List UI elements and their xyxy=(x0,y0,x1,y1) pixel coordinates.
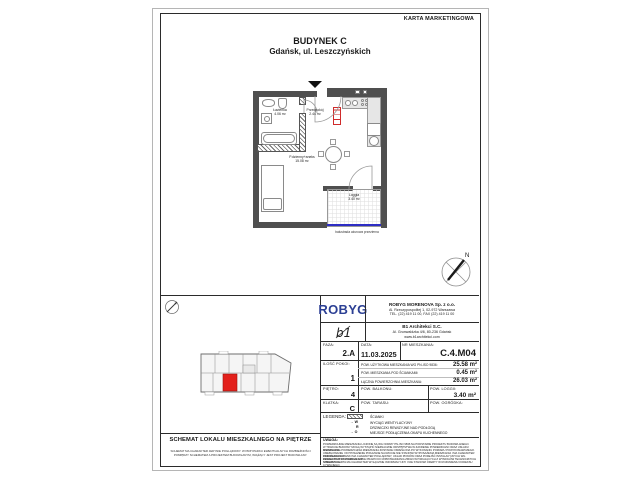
room-area: 2.44 m² xyxy=(301,112,329,116)
pow-tarasu-label: POW. TARASU: xyxy=(361,401,389,405)
partition-bathroom-right-lower xyxy=(299,113,306,152)
hood-symbol: → O xyxy=(350,430,357,434)
wall-left xyxy=(253,91,259,228)
partition-bathroom-right-upper xyxy=(299,97,306,105)
table-line xyxy=(400,341,401,360)
compass-icon: N xyxy=(436,246,480,294)
legenda-label: LEGENDA: xyxy=(323,414,346,419)
building-name: BUDYNEK C xyxy=(220,36,420,46)
room-label-living: P.dzienny+aneks 15.08 m² xyxy=(281,155,323,163)
table-line xyxy=(428,385,429,412)
floor-schematic xyxy=(199,351,295,399)
bathtub-inner-icon xyxy=(263,134,295,143)
area-row-value: 26.03 m² xyxy=(419,378,477,384)
architect-logo: b1 xyxy=(321,323,365,340)
faza-label: FAZA: xyxy=(323,343,334,347)
area-row-value: 0.45 m² xyxy=(419,370,477,376)
ilosc-pokoi-label: ILOŚĆ POKOI: xyxy=(323,362,350,366)
data-label: DATA: xyxy=(361,343,372,347)
stove-burner-icon xyxy=(361,103,364,106)
legend-item-text: WYCIĄG WENTYLACYJNY xyxy=(370,421,412,425)
dining-table-icon xyxy=(325,146,342,163)
table-line xyxy=(321,399,479,400)
balustrade-line xyxy=(327,224,381,226)
kitchen-sink-bowl-icon xyxy=(352,100,358,106)
room-label-hall: Przedpokój 2.44 m² xyxy=(301,108,329,116)
page-title: BUDYNEK C Gdańsk, ul. Leszczyńskich xyxy=(220,36,420,56)
data-value: 11.03.2025 xyxy=(361,350,397,359)
sink-icon xyxy=(262,99,275,107)
klatka-value: C xyxy=(323,404,355,413)
floor-plan: Łazienka 4.06 m² Przedpokój 2.44 m² P.dz… xyxy=(215,83,420,236)
wall-right xyxy=(381,88,387,228)
robyg-logo: ROBYG xyxy=(321,296,365,322)
developer-company: ROBYG MORENOVA Sp. z o.o. xyxy=(389,302,455,307)
compass-north-label: N xyxy=(465,253,469,259)
building-address: Gdańsk, ul. Leszczyńskich xyxy=(220,47,420,56)
document-tag: KARTA MARKETINGOWA xyxy=(338,16,474,22)
area-row-value: 25.58 m² xyxy=(419,362,477,368)
boiler-icon xyxy=(369,136,379,146)
bed-pillow-icon xyxy=(263,198,282,210)
schemat-divider xyxy=(161,433,320,434)
room-area: 15.08 m² xyxy=(281,159,323,163)
architect-info: B1 Architekci S.C. Al. Grunwaldzka 4/6, … xyxy=(365,323,479,340)
svg-text:b1: b1 xyxy=(336,326,351,339)
area-row-label: POW. MIESZKANIA POD ŚCIANKAMI: xyxy=(361,371,418,375)
shaft-square-icon xyxy=(355,90,360,94)
room-label-bathroom: Łazienka 4.06 m² xyxy=(261,108,299,116)
b1-logo-icon: b1 xyxy=(335,325,351,339)
wall-bottom xyxy=(253,222,327,228)
architect-company: B1 Architekci S.C. xyxy=(402,324,441,329)
washing-machine-drum-icon xyxy=(264,116,270,122)
legend-item-text: MIEJSCE PODŁĄCZENIA OKAPU KUCHENNEGO xyxy=(370,431,447,435)
pietro-value: 4 xyxy=(323,390,355,399)
revision-symbol: R xyxy=(356,425,359,429)
nr-mieszkania-value: C.4.M04 xyxy=(402,348,476,359)
wall-top-left xyxy=(253,91,317,97)
room-label-loggia: Loggia 3.40 m² xyxy=(333,193,375,201)
marketing-card-page: KARTA MARKETINGOWA BUDYNEK C Gdańsk, ul.… xyxy=(0,0,640,480)
stove-burner-icon xyxy=(365,103,368,106)
schemat-disclaimer-line2: POMIĘDZY SCHEMATEM A PROJEKTEM BUDOWLANY… xyxy=(165,454,316,457)
floor-schematic-drawing xyxy=(199,351,295,399)
compass-rose: N xyxy=(436,246,480,294)
uwaga-label: UWAGA: xyxy=(323,438,338,442)
room-area: 3.40 m² xyxy=(333,197,375,201)
area-row-label: ŁĄCZNA POWIERZCHNIA MIESZKANIA: xyxy=(361,380,422,384)
faza-value: 2.A xyxy=(323,349,355,358)
wardrobe-icon xyxy=(367,123,381,136)
pow-loggii-label: POW. LOGGII: xyxy=(430,387,456,391)
table-line xyxy=(321,437,479,438)
room-area: 4.06 m² xyxy=(261,112,299,116)
shaft-square-icon xyxy=(363,90,367,94)
stove-burner-icon xyxy=(365,99,368,102)
vent-symbol: → W xyxy=(350,420,358,424)
legend-item-text: ŚCIANKI xyxy=(370,415,384,419)
uwaga-line: NINIEJSZA KARTA MA CHARAKTER WYŁĄCZNIE I… xyxy=(323,461,477,467)
stove-burner-icon xyxy=(361,99,364,102)
installation-shaft-marker xyxy=(333,107,341,125)
nr-mieszkania-label: NR MIESZKANIA: xyxy=(402,343,434,347)
developer-info: ROBYG MORENOVA Sp. z o.o. Al. Rzeczyposp… xyxy=(365,296,479,322)
entrance-arrow-icon xyxy=(308,81,322,88)
highlighted-unit xyxy=(223,374,237,391)
developer-phone: TEL. (22) 419 11 00, FAX (22) 419 11 00 xyxy=(390,312,455,316)
chair-icon xyxy=(330,139,336,145)
legend-item-text: DRZWICZKI REWIZYJNE NAD PODŁOGĄ xyxy=(370,426,435,430)
mini-compass xyxy=(163,298,181,316)
ilosc-pokoi-value: 1 xyxy=(323,374,355,383)
hatch-swatch xyxy=(347,414,363,419)
pow-balkonu-label: POW. BALKONU: xyxy=(361,387,392,391)
balustrade-caption: balustrada ażurowa przezierna xyxy=(323,230,391,234)
chair-icon xyxy=(344,151,350,157)
table-line xyxy=(321,385,479,386)
chair-icon xyxy=(330,164,336,170)
schemat-title: SCHEMAT LOKALU MIESZKALNEGO NA PIĘTRZE xyxy=(162,437,319,443)
kitchen-sink-bowl-icon xyxy=(345,100,351,106)
architect-website: www.b1architekci.com xyxy=(404,335,440,339)
pow-ogrodka-label: POW. OGRÓDKA: xyxy=(430,401,463,405)
mini-compass-icon xyxy=(163,298,181,316)
pow-loggii-value: 3.40 m² xyxy=(430,392,476,399)
